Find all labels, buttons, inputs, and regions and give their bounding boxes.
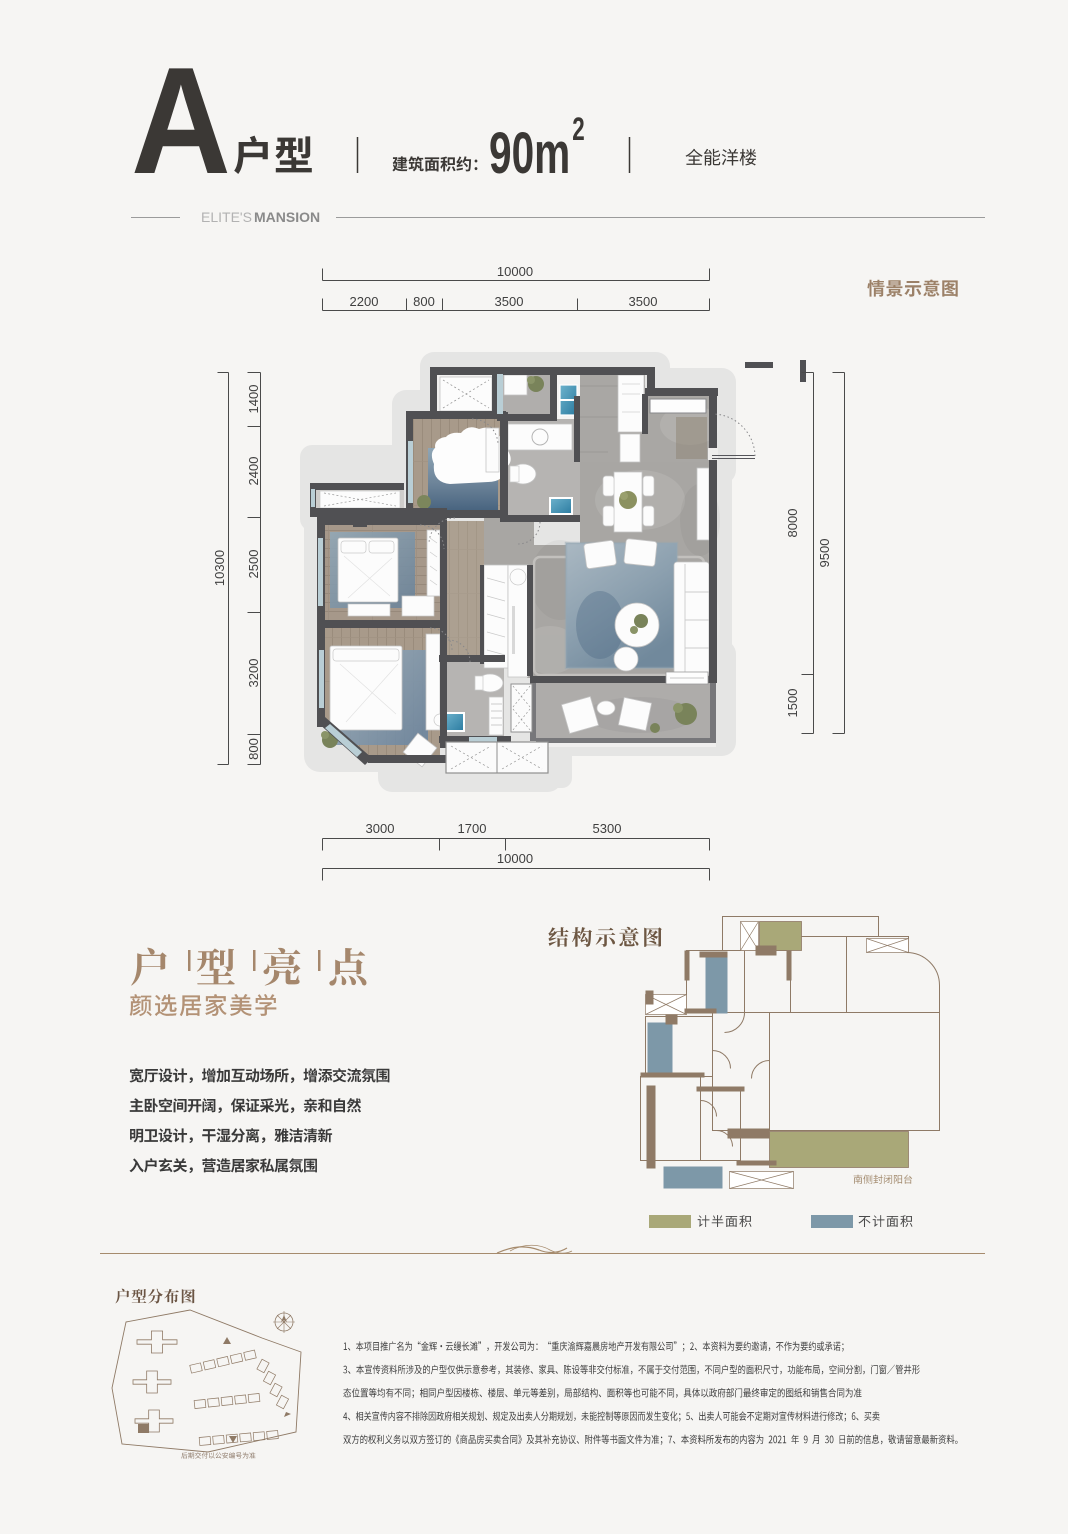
svg-text:2400: 2400: [246, 457, 261, 486]
svg-text:10000: 10000: [497, 264, 533, 279]
svg-text:ELITE'S: ELITE'S: [201, 209, 252, 225]
svg-text:3200: 3200: [246, 659, 261, 688]
svg-text:9500: 9500: [817, 539, 832, 568]
svg-text:A: A: [131, 35, 231, 205]
svg-text:3500: 3500: [629, 294, 658, 309]
svg-text:5300: 5300: [593, 821, 622, 836]
svg-text:1500: 1500: [785, 689, 800, 718]
svg-text:2500: 2500: [246, 550, 261, 579]
svg-text:90m: 90m: [489, 121, 570, 186]
svg-text:3500: 3500: [495, 294, 524, 309]
svg-text:10300: 10300: [212, 550, 227, 586]
svg-text:800: 800: [246, 738, 261, 760]
svg-text:8000: 8000: [785, 509, 800, 538]
svg-text:1700: 1700: [458, 821, 487, 836]
svg-text:10000: 10000: [497, 851, 533, 866]
svg-text:2200: 2200: [350, 294, 379, 309]
svg-text:2: 2: [572, 111, 584, 147]
svg-text:800: 800: [413, 294, 435, 309]
svg-text:3000: 3000: [366, 821, 395, 836]
svg-text:MANSION: MANSION: [254, 209, 320, 225]
svg-text:1400: 1400: [246, 385, 261, 414]
